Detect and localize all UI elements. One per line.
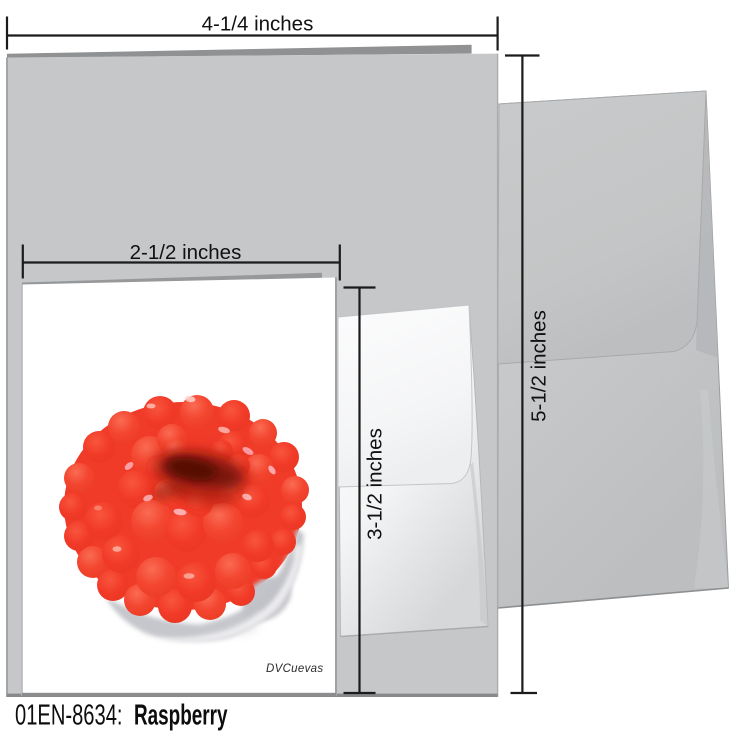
svg-text:Raspberry: Raspberry xyxy=(134,700,228,732)
svg-text:3-1/2 inches: 3-1/2 inches xyxy=(364,428,387,540)
svg-text:01EN-8634:: 01EN-8634: xyxy=(15,700,123,732)
svg-text:5-1/2 inches: 5-1/2 inches xyxy=(528,310,551,422)
svg-text:2-1/2 inches: 2-1/2 inches xyxy=(130,241,242,264)
svg-text:DVCuevas: DVCuevas xyxy=(266,663,323,675)
svg-text:4-1/4 inches: 4-1/4 inches xyxy=(202,12,314,35)
